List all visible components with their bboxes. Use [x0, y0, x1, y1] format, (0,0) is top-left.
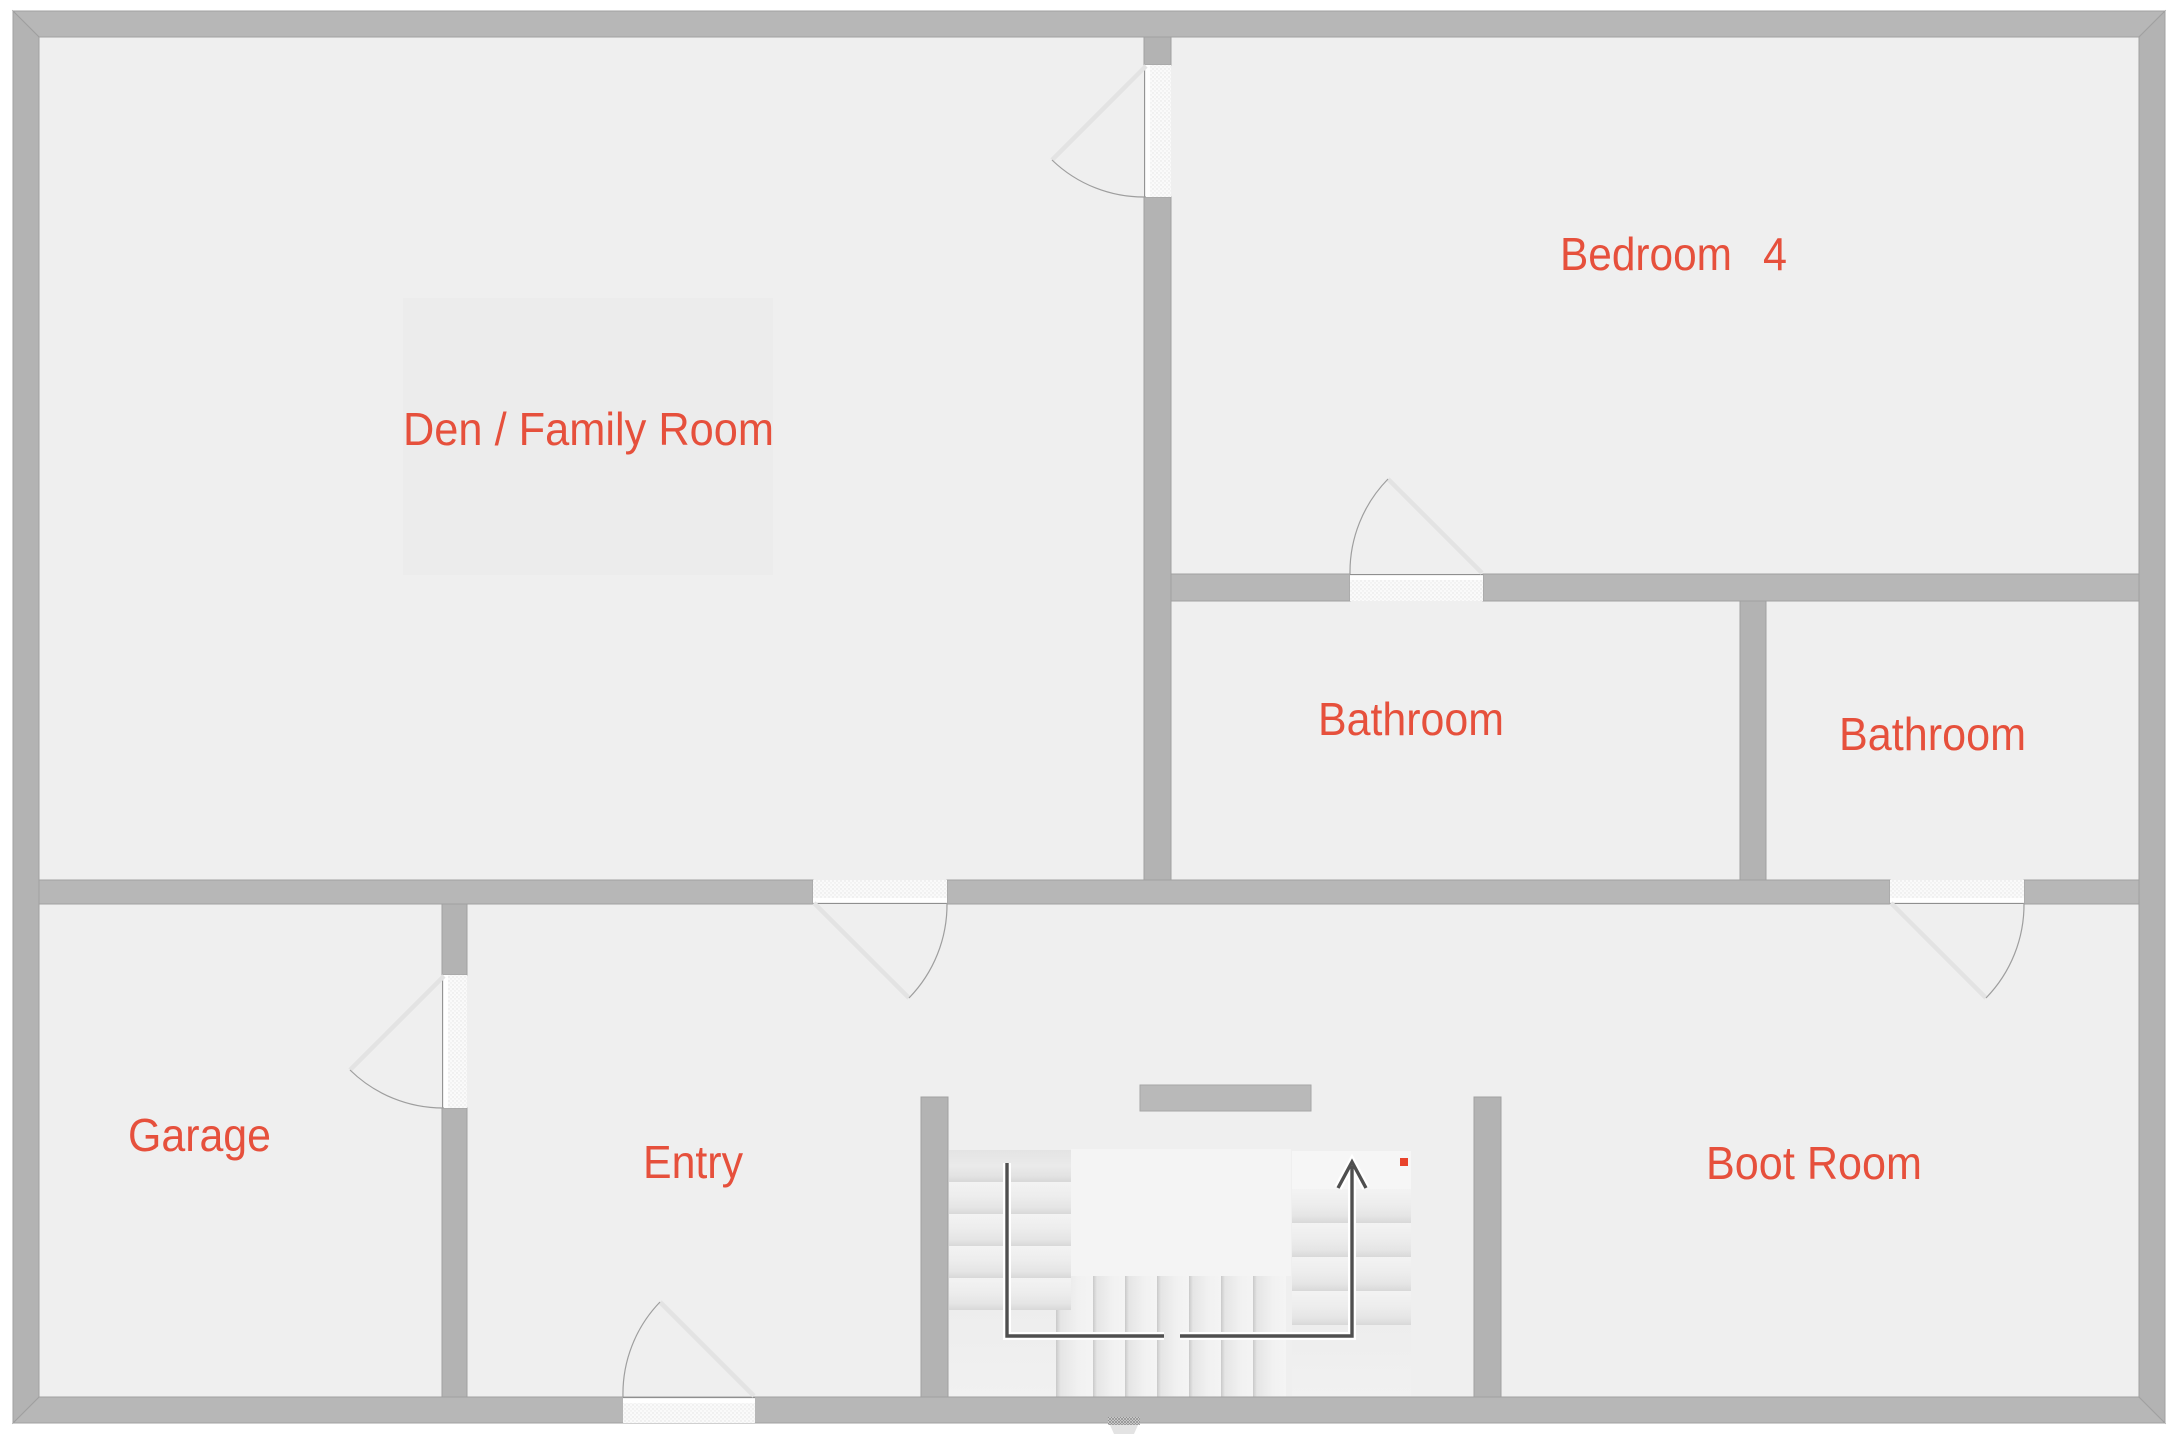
- svg-text:Den / Family Room: Den / Family Room: [403, 403, 774, 455]
- svg-text:Boot Room: Boot Room: [1706, 1137, 1922, 1189]
- svg-text:Bathroom: Bathroom: [1839, 708, 2026, 760]
- svg-text:Entry: Entry: [643, 1136, 743, 1188]
- svg-text:Bedroom: Bedroom: [1560, 228, 1732, 280]
- svg-text:Bathroom: Bathroom: [1318, 693, 1504, 745]
- svg-text:4: 4: [1763, 228, 1787, 280]
- svg-text:Garage: Garage: [128, 1109, 271, 1161]
